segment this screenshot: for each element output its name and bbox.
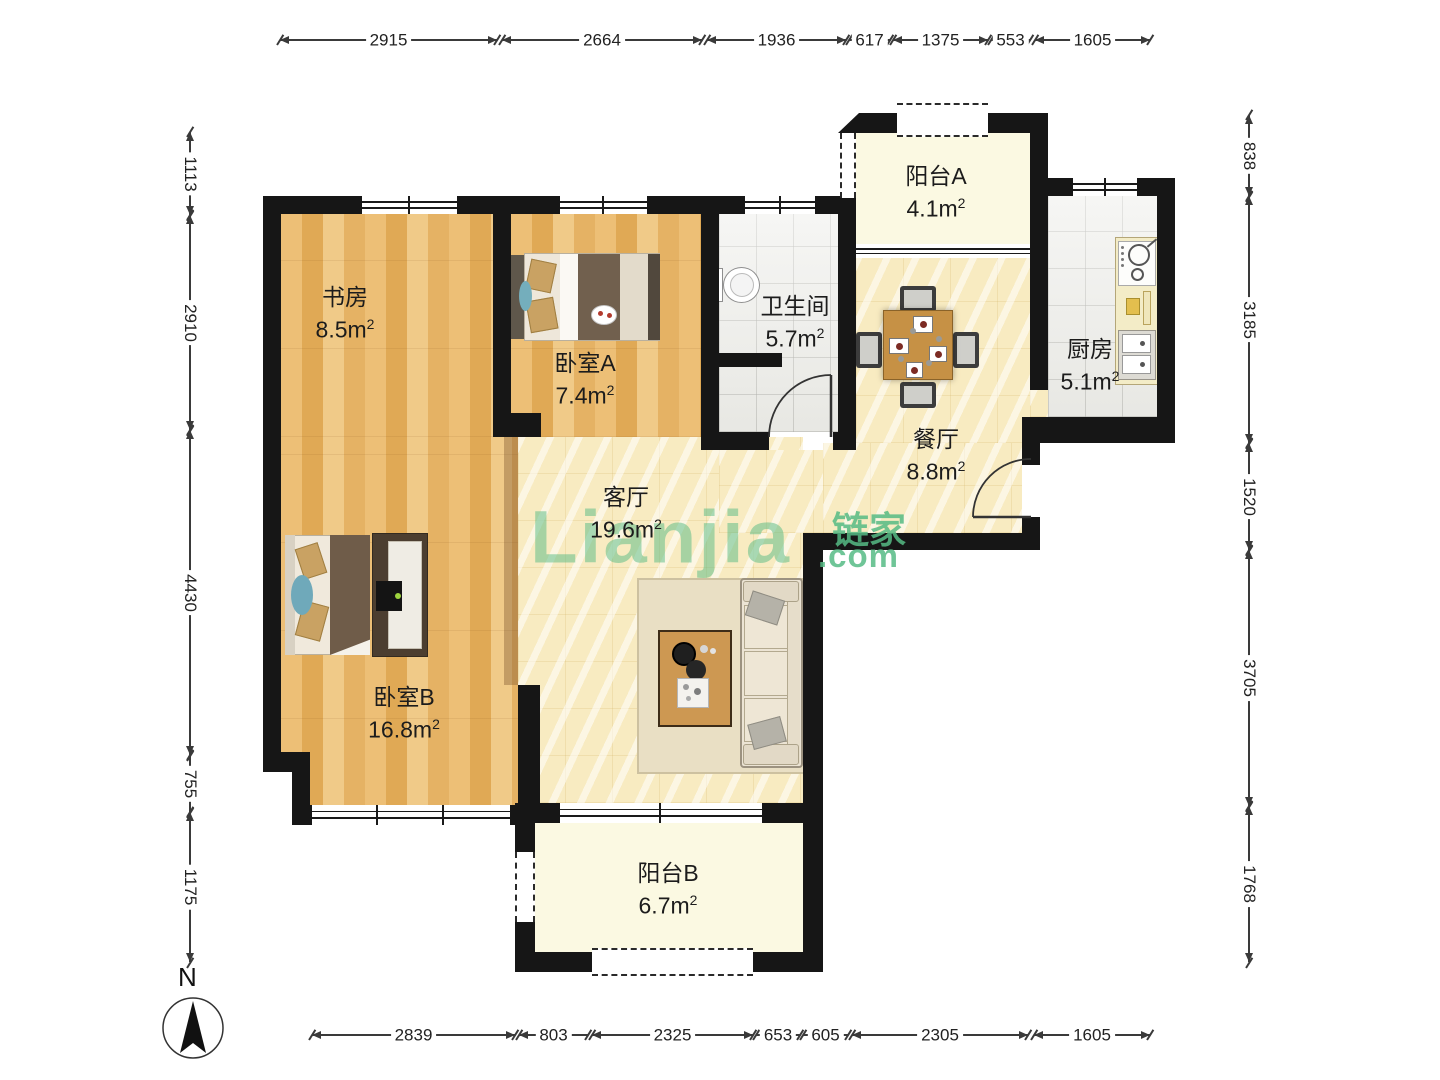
room-name: 卫生间 (761, 293, 830, 320)
room-label-living: 客厅 19.6m2 (590, 484, 662, 544)
dim-bottom-3: 2325 (592, 1025, 753, 1045)
room-name: 书房 (316, 284, 375, 311)
room-area: 19.6m2 (590, 511, 662, 544)
dim-top-3: 1936 (707, 30, 846, 50)
room-name: 阳台A (905, 163, 966, 190)
room-name: 卧室A (554, 350, 615, 377)
room-name: 卧室B (368, 684, 440, 711)
room-label-balcony-a: 阳台A 4.1m2 (905, 163, 966, 223)
room-label-bedroom-a: 卧室A 7.4m2 (554, 350, 615, 410)
room-area: 5.7m2 (761, 320, 830, 353)
room-area: 7.4m2 (554, 377, 615, 410)
dim-right-1: 838 (1239, 115, 1259, 196)
dim-bottom-5: 605 (803, 1025, 848, 1045)
dim-right-2: 3185 (1239, 196, 1259, 443)
room-name: 餐厅 (907, 426, 966, 453)
room-label-bedroom-b: 卧室B 16.8m2 (368, 684, 440, 744)
dim-bottom-1: 2839 (312, 1025, 515, 1045)
dim-left-5: 1175 (180, 812, 200, 962)
floorplan-canvas: 书房 8.5m2 卧室A 7.4m2 卫生间 5.7m2 阳台A 4.1m2 厨… (0, 0, 1440, 1080)
dim-right-4: 3705 (1239, 550, 1259, 806)
room-area: 8.5m2 (316, 311, 375, 344)
dim-left-2: 2910 (180, 215, 200, 430)
dim-left-3: 4430 (180, 430, 200, 755)
dim-top-6: 553 (991, 30, 1030, 50)
dim-bottom-7: 1605 (1034, 1025, 1150, 1045)
dim-bottom-6: 2305 (852, 1025, 1028, 1045)
dim-top-5: 1375 (893, 30, 988, 50)
dim-right-5: 1768 (1239, 806, 1259, 962)
dim-left-1: 1113 (180, 132, 200, 215)
dim-bottom-2: 803 (519, 1025, 588, 1045)
room-label-bathroom: 卫生间 5.7m2 (761, 293, 830, 353)
watermark-dot-com: .com (818, 537, 899, 575)
room-area: 8.8m2 (907, 453, 966, 486)
room-area: 5.1m2 (1061, 363, 1120, 396)
room-area: 6.7m2 (637, 887, 698, 920)
dim-top-4: 617 (849, 30, 890, 50)
dim-top-1: 2915 (280, 30, 497, 50)
dim-top-7: 1605 (1035, 30, 1150, 50)
dim-bottom-4: 653 (756, 1025, 800, 1045)
room-name: 厨房 (1061, 336, 1120, 363)
room-label-balcony-b: 阳台B 6.7m2 (637, 860, 698, 920)
room-label-study: 书房 8.5m2 (316, 284, 375, 344)
dim-right-3: 1520 (1239, 443, 1259, 550)
room-name: 客厅 (590, 484, 662, 511)
room-label-dining: 餐厅 8.8m2 (907, 426, 966, 486)
room-name: 阳台B (637, 860, 698, 887)
dim-top-2: 2664 (502, 30, 702, 50)
room-area: 16.8m2 (368, 711, 440, 744)
room-area: 4.1m2 (905, 190, 966, 223)
dim-left-4: 755 (180, 755, 200, 812)
room-label-kitchen: 厨房 5.1m2 (1061, 336, 1120, 396)
